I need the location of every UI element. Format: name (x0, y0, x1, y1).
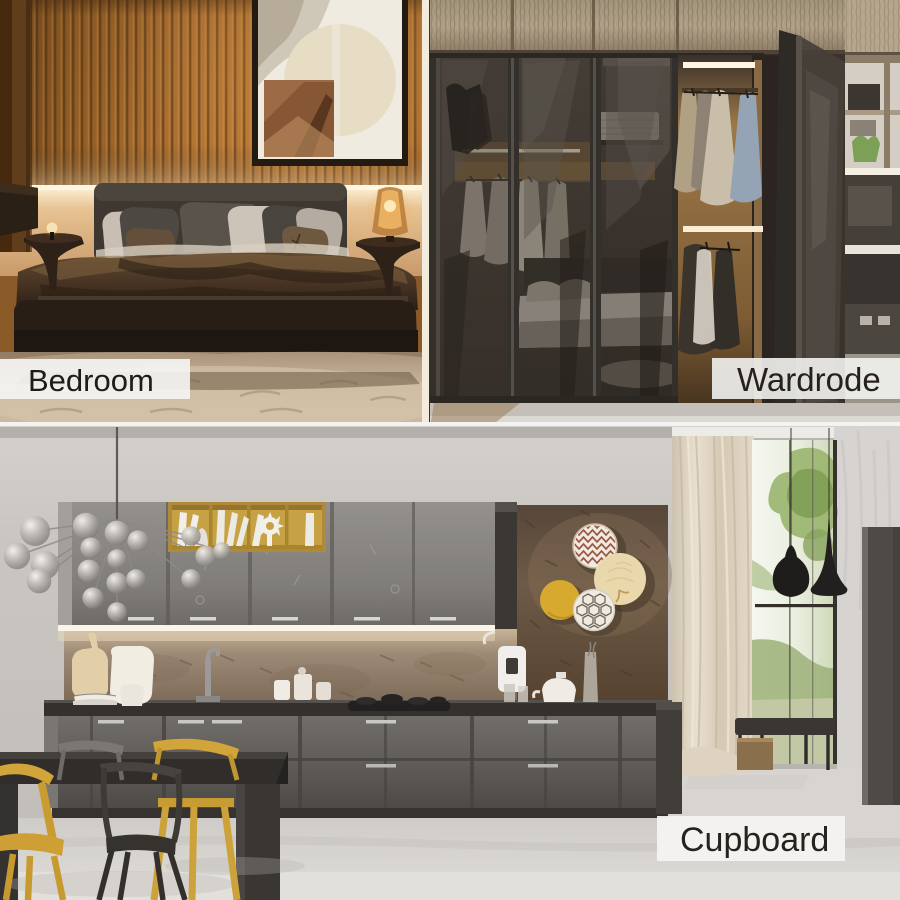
svg-text:Cupboard: Cupboard (680, 821, 829, 859)
svg-text:Wardrode: Wardrode (737, 361, 881, 398)
svg-text:Bedroom: Bedroom (28, 363, 154, 398)
